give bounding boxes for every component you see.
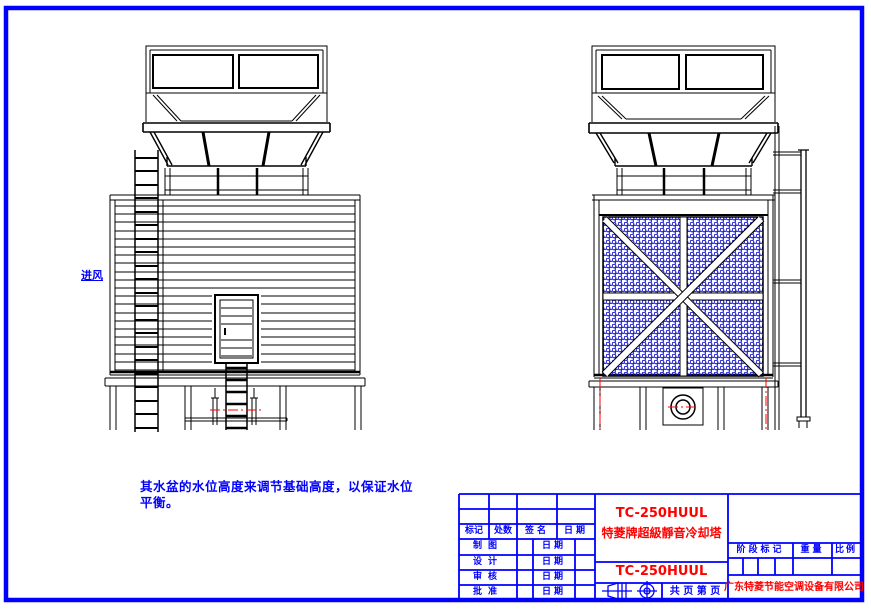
row-label-reviewed: 审核 — [459, 570, 517, 585]
fan-deck — [589, 123, 778, 133]
door-mask — [212, 292, 261, 366]
col-header-weight: 重量 — [793, 543, 832, 558]
front-view — [105, 46, 365, 432]
basin-dividers — [664, 168, 704, 195]
edge-ladder-foot — [797, 417, 810, 428]
side-legs — [594, 387, 768, 430]
row-date-designed: 日期 — [533, 555, 575, 570]
fan-deck — [143, 123, 330, 132]
hood-struts — [203, 132, 269, 166]
hood-outline — [150, 132, 323, 166]
row-label-approved: 批准 — [459, 585, 517, 600]
fan-housing-outline — [146, 46, 327, 122]
air-inlet-label: 进风 — [76, 268, 108, 284]
row-label-designed: 设计 — [459, 555, 517, 570]
fan-grille-right — [239, 55, 318, 88]
hood-outline — [596, 133, 771, 166]
page-count-label: 共 页 第 页 — [662, 583, 728, 600]
col-header-mark: 标记 — [459, 524, 489, 539]
note-line-2: 平衡。 — [140, 495, 420, 511]
edge-ladder-brackets — [773, 152, 801, 366]
first-angle-projection-icon — [602, 583, 632, 599]
fan-grille-right — [686, 55, 763, 89]
engineering-drawing-sheet: 进风 其水盆的水位高度来调节基础高度，以保证水位 平衡。 标记 处数 签名 日期… — [0, 0, 871, 611]
col-header-scale: 比例 — [832, 543, 860, 558]
note-line-1: 其水盆的水位高度来调节基础高度，以保证水位 — [140, 479, 420, 495]
col-header-date: 日期 — [557, 524, 595, 539]
col-header-count: 处数 — [489, 524, 517, 539]
col-header-stage-mark: 阶段标记 — [728, 543, 793, 558]
fan-housing-outline — [592, 46, 775, 122]
cad-drawing — [0, 0, 871, 611]
access-ladder-rungs — [226, 368, 247, 428]
water-level-note: 其水盆的水位高度来调节基础高度，以保证水位 平衡。 — [140, 479, 420, 511]
row-date-approved: 日期 — [533, 585, 575, 600]
side-ladder-rails — [135, 150, 158, 432]
drawing-number: TC-250HUUL — [595, 562, 728, 583]
basin-band — [165, 168, 308, 195]
company-name: 广东特菱节能空调设备有限公司 — [728, 575, 860, 600]
row-date-drafted: 日期 — [533, 539, 575, 555]
row-date-reviewed: 日期 — [533, 570, 575, 585]
fan-grille-left — [602, 55, 679, 89]
pipe-posts — [211, 388, 258, 425]
product-model: TC-250HUUL — [595, 506, 728, 522]
hood-struts — [649, 133, 719, 166]
side-ladder-rungs — [135, 158, 158, 428]
fan-grille-left — [153, 55, 233, 88]
row-label-drafted: 制图 — [459, 539, 517, 555]
base-tray — [185, 418, 287, 421]
basin-band — [617, 168, 751, 195]
product-name: 特菱牌超級靜音冷却塔 — [595, 526, 728, 542]
col-header-signature: 签名 — [517, 524, 557, 539]
side-view — [589, 46, 810, 430]
basin-dividers — [218, 168, 257, 195]
